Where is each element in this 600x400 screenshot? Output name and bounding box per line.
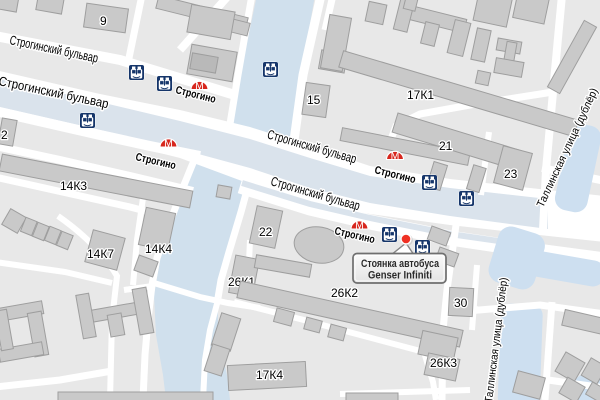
svg-text:17К4: 17К4: [256, 368, 283, 382]
svg-text:9: 9: [100, 14, 107, 28]
svg-text:14К3: 14К3: [60, 179, 87, 193]
svg-text:15: 15: [307, 93, 321, 107]
svg-text:17К1: 17К1: [407, 88, 434, 102]
svg-text:2: 2: [1, 128, 8, 142]
svg-text:26К2: 26К2: [331, 286, 358, 300]
svg-text:30: 30: [454, 296, 468, 310]
svg-text:14К7: 14К7: [87, 247, 114, 261]
svg-text:26К3: 26К3: [430, 356, 457, 370]
svg-text:23: 23: [504, 167, 518, 181]
svg-text:14К4: 14К4: [145, 242, 172, 256]
svg-text:22: 22: [259, 225, 273, 239]
svg-text:Стоянка автобуса: Стоянка автобуса: [361, 258, 440, 270]
svg-text:Genser Infiniti: Genser Infiniti: [368, 270, 432, 282]
svg-text:21: 21: [439, 139, 453, 153]
